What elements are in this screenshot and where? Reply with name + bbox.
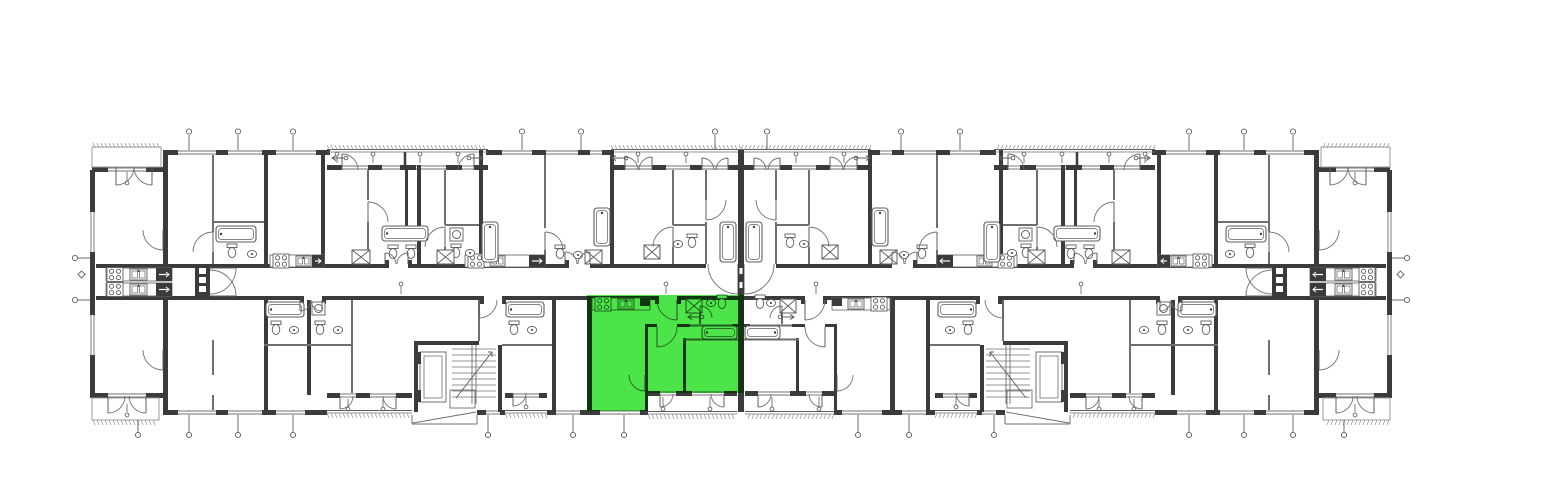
floor-plan-figure (0, 0, 1556, 500)
floor-plan-page (0, 0, 1556, 500)
floor-plan-canvas (0, 0, 1556, 500)
